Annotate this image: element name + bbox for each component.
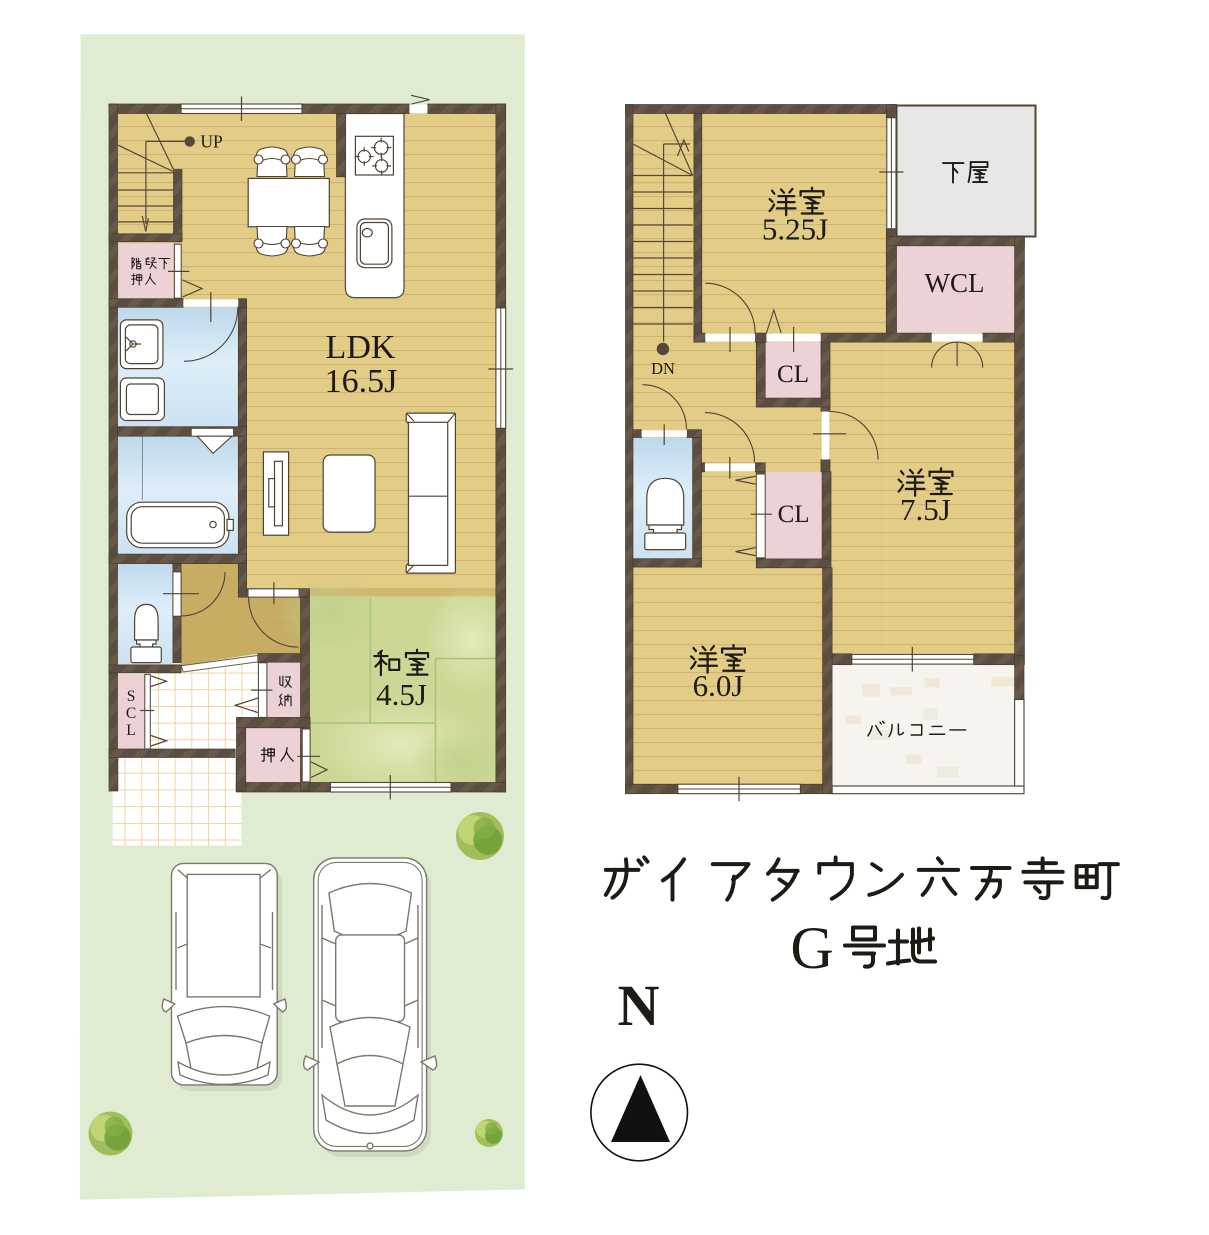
svg-text:7.5J: 7.5J (900, 492, 951, 527)
svg-text:16.5J: 16.5J (325, 363, 398, 400)
svg-text:5.25J: 5.25J (762, 212, 828, 247)
svg-text:CL: CL (778, 501, 810, 528)
svg-text:G: G (790, 915, 833, 981)
svg-text:4.5J: 4.5J (376, 677, 427, 712)
svg-text:6.0J: 6.0J (693, 668, 744, 703)
svg-text:N: N (618, 973, 660, 1038)
svg-text:C: C (126, 705, 136, 722)
svg-text:S: S (127, 688, 136, 705)
svg-text:CL: CL (777, 361, 809, 388)
svg-text:LDK: LDK (326, 329, 396, 366)
svg-text:WCL: WCL (925, 268, 985, 298)
svg-text:DN: DN (651, 359, 675, 378)
svg-text:L: L (126, 722, 135, 739)
svg-text:UP: UP (200, 132, 223, 152)
